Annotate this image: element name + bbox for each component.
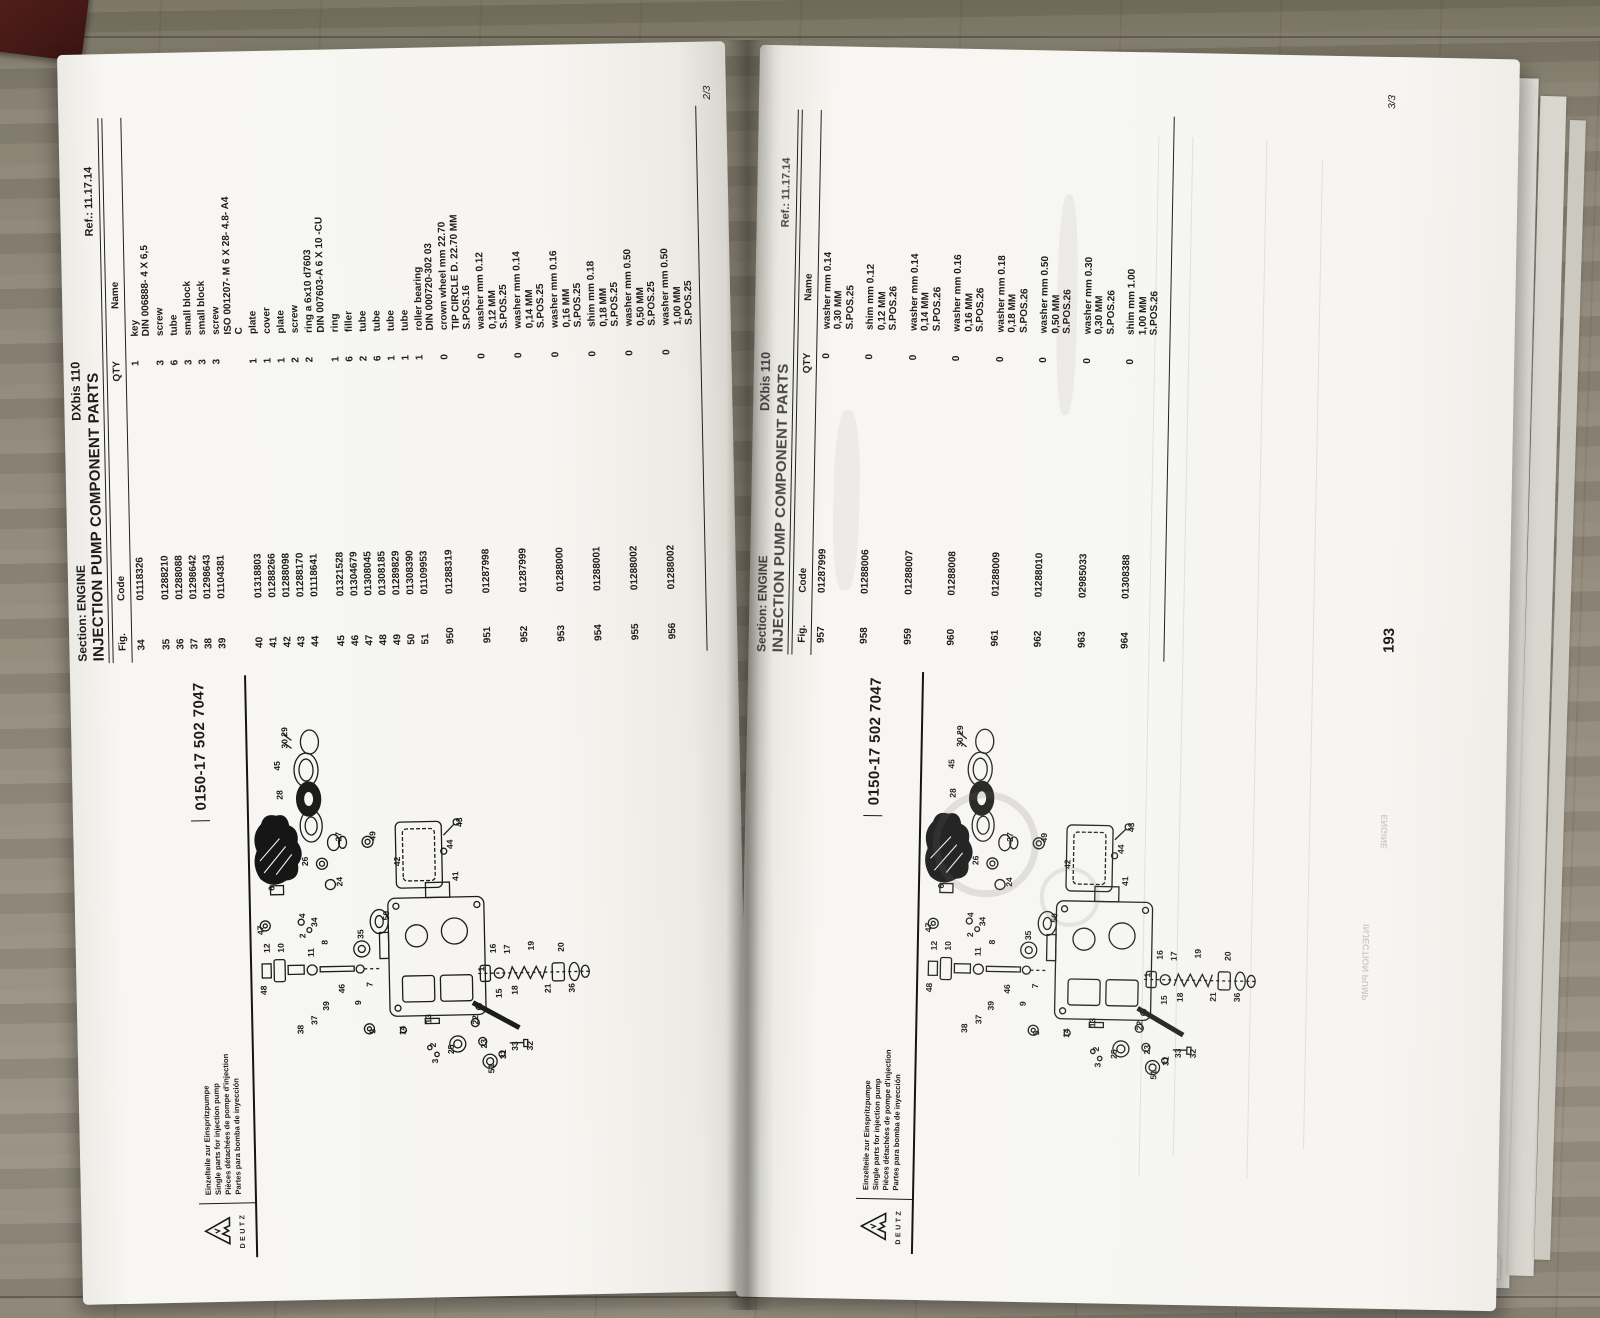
callout-number: 12: [262, 943, 272, 953]
callout-number: 42: [392, 856, 402, 866]
fig-cell: 956: [666, 589, 702, 652]
callout-number: 14: [397, 1025, 407, 1035]
callout-number: 36: [1232, 992, 1242, 1002]
code-cell: 01288000: [553, 483, 590, 592]
callout-number: 7: [364, 982, 374, 987]
qty-cell: 0: [624, 350, 661, 483]
code-cell: 01109953: [417, 486, 442, 594]
deutz-logo-icon: [859, 1209, 890, 1244]
callout-number: 7: [1030, 983, 1040, 988]
code-cell: 01298643: [200, 491, 214, 599]
callout-number: 6: [266, 886, 276, 891]
callout-number: 33: [510, 1041, 520, 1051]
callout-number: 8: [320, 940, 330, 945]
name-cell: shim mm 0.120,12 MMS.POS.26: [865, 264, 901, 331]
col-name: Name: [110, 282, 122, 309]
callout-number: 20: [1223, 951, 1233, 961]
callout-number: 15: [494, 988, 504, 998]
callout-number: 13: [1087, 1018, 1097, 1028]
code-cell: 01308185: [375, 487, 389, 595]
callout-number: 9: [1018, 1001, 1028, 1006]
fig-cell: 953: [555, 591, 591, 654]
qty-cell: 0: [550, 351, 587, 484]
left-page-content: Section: ENGINE DXbis 110 INJECTION PUMP…: [59, 45, 745, 1299]
col-qty: QTY: [111, 361, 125, 493]
fig-cell: 45: [335, 596, 348, 658]
name-cell: washer mm 0.140,30 MMS.POS.25: [821, 252, 857, 330]
fig-cell: 37: [188, 599, 201, 661]
callout-number: 2: [428, 1042, 438, 1047]
fig-cell: 957: [815, 593, 851, 656]
callout-number: 31: [1161, 1056, 1171, 1066]
deutz-brand-text: DEUTZ: [895, 1200, 903, 1254]
qty-cell: 6: [372, 355, 386, 487]
diagram-box: DEUTZ Einzelteile zur Einspritzpumpe Sin…: [188, 667, 678, 1259]
diagram-part-number: 0150-17 502 7047: [188, 676, 210, 822]
qty-cell: 1: [400, 355, 414, 487]
name-cell: washer mm 0.120,12 MMS.POS.25: [474, 251, 510, 329]
fig-cell: 963: [1076, 598, 1112, 661]
fig-cell: 955: [629, 590, 665, 653]
right-page-content: Section: ENGINE DXbis 110 INJECTION PUMP…: [738, 49, 1422, 1301]
exploded-diagram: 4812103837394611897476434230 29452840262…: [246, 669, 673, 1258]
fig-cell: 960: [945, 596, 981, 659]
qty-cell: 0: [949, 356, 986, 489]
model-label: DXbis 110: [68, 362, 83, 421]
fig-cell: 954: [592, 590, 628, 653]
callout-number: 49: [367, 831, 377, 841]
qty-cell: 2: [358, 356, 372, 488]
callout-number: 45: [946, 759, 956, 769]
name-cell: washer mm 0.140,14 MMS.POS.25: [511, 251, 547, 329]
fig-cell: 962: [1032, 597, 1068, 660]
fig-cell: 51: [419, 594, 443, 656]
qty-cell: 3: [155, 360, 169, 492]
fig-cell: 44: [309, 596, 333, 658]
name-cell: washer mm 0.500,50 MMS.POS.25: [622, 248, 658, 326]
fig-cell: 39: [216, 598, 252, 661]
callout-number: 30 29: [279, 727, 289, 749]
name-cell: plate: [247, 311, 259, 335]
callout-number: 22: [470, 1015, 480, 1025]
deutz-logo: DEUTZ: [855, 1198, 912, 1254]
exploded-diagram: 4812103837394611897476434230 29452840262…: [913, 674, 1339, 1262]
callout-number: 44: [1116, 844, 1126, 854]
deutz-logo-icon: [203, 1214, 234, 1249]
deutz-brand-text: DEUTZ: [239, 1203, 247, 1257]
qty-cell: 1: [276, 357, 290, 489]
code-cell: 01288001: [590, 482, 627, 591]
red-book-corner: [0, 0, 90, 62]
code-cell: 01288319: [442, 485, 479, 594]
code-cell: 01288266: [265, 490, 279, 598]
book-photo: Section: ENGINE DXbis 110 INJECTION PUMP…: [0, 0, 1600, 1318]
sheet-indicator: 3/3: [1387, 95, 1398, 109]
callout-number: 35: [1023, 930, 1033, 940]
callout-number: 2: [1091, 1046, 1101, 1051]
callout-number: 9: [353, 1000, 363, 1005]
callout-number: 22: [1134, 1020, 1144, 1030]
callout-number: 2: [965, 932, 975, 937]
fig-cell: 951: [481, 593, 517, 656]
fig-cell: 38: [202, 599, 215, 661]
callout-number: 13: [423, 1014, 433, 1024]
code-cell: 01288002: [664, 481, 701, 590]
code-cell: 01287999: [516, 484, 553, 593]
qty-cell: 6: [344, 356, 358, 488]
ref-label: Ref.: 11.17.14: [780, 158, 793, 228]
code-cell: 01288002: [627, 482, 664, 591]
qty-cell: 0: [476, 353, 513, 486]
callout-number: 34: [309, 917, 319, 927]
table-row: 961012880090washer mm 0.180,18 MMS.POS.2…: [989, 113, 1034, 659]
code-cell: 01308390: [403, 487, 417, 595]
qty-cell: 0: [513, 352, 550, 485]
callout-number: 21: [543, 983, 553, 993]
code-cell: 01288006: [860, 486, 897, 595]
callout-number: 48: [924, 982, 934, 992]
callout-number: 19: [526, 941, 536, 951]
qty-cell: 0: [661, 349, 698, 482]
name-cell: washer mm 0.300,30 MMS.POS.26: [1082, 257, 1118, 335]
diagram-box: DEUTZ Einzelteile zur Einspritzpumpe Sin…: [855, 671, 1344, 1262]
fig-cell: 35: [160, 600, 173, 662]
qty-cell: 1: [248, 358, 262, 490]
col-name: Name: [803, 273, 815, 300]
callout-number: 31: [498, 1049, 508, 1059]
callout-number: 39: [321, 1001, 331, 1011]
name-cell: washer mm 0.140,14 MMS.POS.26: [908, 253, 944, 331]
callout-number: 4: [297, 913, 307, 918]
callout-number: 21: [1208, 992, 1218, 1002]
name-cell: ring a 6x10 d7603DIN 007603-A 6 X 10 -CU: [301, 217, 326, 333]
diagram-languages: Einzelteile zur Einspritzpumpe Single pa…: [856, 942, 906, 1199]
callout-number: 2: [297, 933, 307, 938]
page-number: 193: [1381, 628, 1398, 653]
callout-number: 48: [259, 985, 269, 995]
wood-plank-line: [0, 36, 1600, 38]
qty-cell: 0: [587, 350, 624, 483]
fig-cell: 43: [295, 597, 308, 659]
fig-cell: 34: [135, 600, 159, 662]
code-cell: 01288170: [293, 489, 307, 597]
ref-label: Ref.: 11.17.14: [82, 167, 95, 237]
code-cell: 02985033: [1077, 490, 1114, 599]
callout-number: 38: [295, 1024, 305, 1034]
callout-number: 27: [333, 832, 343, 842]
qty-cell: 1: [262, 358, 276, 490]
callout-number: 14: [1061, 1028, 1071, 1038]
qty-cell: 0: [439, 353, 476, 486]
section-label: Section: ENGINE: [74, 565, 90, 662]
callout-number: 38: [959, 1023, 969, 1033]
fig-cell: 49: [391, 595, 404, 657]
fig-cell: 42: [281, 597, 294, 659]
ghost-text: INJECTION PUMP: [1360, 924, 1371, 1001]
qty-cell: 0: [992, 356, 1029, 489]
callout-number: 25: [1109, 1049, 1119, 1059]
name-cell: tube: [399, 310, 411, 331]
qty-cell: 3: [211, 358, 248, 491]
code-cell: 01304679: [347, 488, 361, 596]
callout-number: 25: [446, 1044, 456, 1054]
name-cell: shim mm 0.180,18 MMS.POS.25: [585, 260, 621, 327]
callout-number: 12: [929, 940, 939, 950]
callout-number: 43: [454, 817, 464, 827]
fig-cell: 50: [405, 595, 418, 657]
col-qty: QTY: [800, 353, 814, 485]
name-cell: screw: [289, 305, 301, 334]
callout-number: 6: [936, 883, 946, 888]
fig-cell: 47: [363, 596, 376, 658]
code-cell: 01288007: [903, 487, 940, 596]
fig-cell: 36: [174, 600, 187, 662]
callout-number: 40: [277, 817, 287, 827]
ghost-text: ENGINE: [1379, 814, 1390, 849]
name-cell: roller bearingDIN 000720-302 03: [412, 243, 437, 331]
callout-number: 16: [488, 943, 498, 953]
qty-cell: 3: [183, 359, 197, 491]
callout-number: 47: [255, 925, 265, 935]
parts-table: Fig. Code QTY Name 34011183261keyDIN 006…: [104, 106, 707, 663]
callout-number: 5: [367, 1029, 377, 1034]
callout-number: 3: [430, 1058, 440, 1063]
callout-number: 46: [1002, 984, 1012, 994]
diagram-part-number: 0150-17 502 7047: [863, 671, 885, 817]
code-cell: 01288088: [172, 492, 186, 600]
name-cell: tube: [168, 315, 180, 336]
callout-number: 1: [476, 966, 486, 971]
qty-cell: 2: [290, 357, 304, 489]
sheet-indicator: 2/3: [702, 85, 713, 99]
table-row: 963029850330washer mm 0.300,30 MMS.POS.2…: [1076, 115, 1121, 661]
col-fig: Fig.: [116, 601, 129, 663]
callout-number: 17: [502, 944, 512, 954]
name-cell: washer mm 0.160,16 MMS.POS.26: [952, 254, 988, 332]
code-cell: 01118326: [133, 492, 158, 600]
code-cell: 01104381: [214, 490, 251, 599]
fig-cell: 41: [267, 598, 280, 660]
callout-number: 10: [943, 941, 953, 951]
callout-number: 8: [987, 939, 997, 944]
fig-cell: 950: [444, 593, 480, 656]
code-cell: 01288098: [279, 489, 293, 597]
fig-cell: 952: [518, 592, 554, 655]
name-cell: tube: [385, 310, 397, 331]
callout-number: 37: [973, 1014, 983, 1024]
callout-number: 50: [381, 911, 391, 921]
callout-number: 26: [300, 856, 310, 866]
fig-cell: 961: [989, 596, 1025, 659]
qty-cell: 1: [130, 360, 156, 492]
callout-number: 3: [1093, 1062, 1103, 1067]
name-cell: washer mm 0.160,16 MMS.POS.25: [548, 250, 584, 328]
callout-number: 15: [1159, 995, 1169, 1005]
qty-cell: 3: [197, 359, 211, 491]
code-cell: 01288008: [947, 488, 984, 597]
col-code: Code: [798, 485, 812, 593]
code-cell: 01321528: [333, 488, 347, 596]
code-cell: 01118641: [307, 489, 332, 597]
fig-cell: 48: [377, 595, 390, 657]
table-bottom-rule: [1163, 117, 1174, 662]
callout-number: 51: [1148, 1070, 1158, 1080]
callout-number: 37: [309, 1015, 319, 1025]
qty-cell: 1: [330, 356, 344, 488]
callout-number: 34: [977, 916, 987, 926]
fig-cell: 46: [349, 596, 362, 658]
callout-number: 47: [923, 922, 933, 932]
col-code: Code: [114, 493, 128, 601]
code-cell: 01288009: [990, 488, 1027, 597]
deutz-logo: DEUTZ: [199, 1202, 256, 1258]
code-cell: 01287998: [479, 485, 516, 594]
callout-number: 16: [1155, 950, 1165, 960]
name-cell: small block: [196, 281, 209, 336]
code-cell: 01318803: [251, 490, 265, 598]
code-cell: 01298642: [186, 491, 200, 599]
name-cell: screwISO 001207- M 6 X 28- 4.8- A4C: [208, 196, 245, 335]
callout-number: 28: [274, 790, 284, 800]
right-page: Section: ENGINE DXbis 110 INJECTION PUMP…: [736, 45, 1520, 1311]
callout-number: 39: [986, 1001, 996, 1011]
name-cell: cover: [261, 307, 273, 334]
callout-number: 32: [1188, 1048, 1198, 1058]
name-cell: keyDIN 006888- 4 X 6,5: [127, 245, 152, 337]
name-cell: ring: [329, 313, 341, 332]
code-cell: 01288210: [158, 492, 172, 600]
callout-number: 4: [965, 912, 975, 917]
diagram-languages: Einzelteile zur Einspritzpumpe Single pa…: [194, 947, 244, 1204]
fig-cell: 959: [902, 595, 938, 658]
name-cell: small block: [182, 281, 195, 336]
callout-number: 35: [355, 929, 365, 939]
callout-number: 24: [334, 877, 344, 887]
name-cell: crown wheel mm 22.70TIP CIRCLE D. 22.70 …: [436, 214, 473, 330]
fig-cell: 958: [858, 594, 894, 657]
name-cell: plate: [275, 310, 287, 334]
callout-number: 41: [1120, 876, 1130, 886]
callout-number: 5: [1031, 1030, 1041, 1035]
callout-number: 36: [567, 983, 577, 993]
name-cell: screw: [154, 308, 166, 337]
book-spine-shadow: [726, 40, 774, 1310]
callout-number: 51: [486, 1063, 496, 1073]
callout-number: 10: [276, 943, 286, 953]
fig-cell: 40: [253, 598, 266, 660]
qty-cell: 0: [862, 354, 899, 487]
qty-cell: 0: [905, 355, 942, 488]
qty-cell: 2: [304, 357, 330, 489]
code-cell: 01289829: [389, 487, 403, 595]
callout-number: 23: [479, 1039, 489, 1049]
name-cell: tube: [371, 310, 383, 331]
callout-number: 20: [556, 942, 566, 952]
name-cell: filler: [343, 311, 355, 332]
left-page: Section: ENGINE DXbis 110 INJECTION PUMP…: [57, 41, 751, 1305]
callout-number: 32: [525, 1041, 535, 1051]
table-row: 959012880070washer mm 0.140,14 MMS.POS.2…: [902, 112, 947, 658]
callout-number: 11: [973, 947, 983, 956]
name-cell: washer mm 0.501,00 MMS.POS.25: [659, 248, 695, 326]
name-cell: tube: [357, 311, 369, 332]
callout-number: 45: [272, 761, 282, 771]
qty-cell: 1: [386, 355, 400, 487]
callout-number: 46: [336, 984, 346, 994]
callout-number: 1: [1142, 972, 1152, 977]
callout-number: 30 29: [955, 725, 965, 747]
table-row: 960012880080washer mm 0.160,16 MMS.POS.2…: [945, 113, 990, 659]
callout-number: 41: [450, 871, 460, 881]
callout-number: 28: [948, 788, 958, 798]
code-cell: 01308045: [361, 488, 375, 596]
callout-number: 19: [1193, 949, 1203, 959]
qty-cell: 0: [1079, 358, 1116, 491]
callout-number: 44: [444, 839, 454, 849]
qty-cell: 6: [169, 360, 183, 492]
callout-number: 11: [306, 948, 316, 957]
callout-number: 18: [510, 985, 520, 995]
qty-cell: 1: [414, 354, 440, 486]
table-row: 958012880060shim mm 0.120,12 MMS.POS.26: [858, 111, 903, 657]
name-cell: washer mm 0.180,18 MMS.POS.26: [995, 255, 1031, 333]
callout-number: 49: [1039, 833, 1049, 843]
callout-number: 23: [1142, 1045, 1152, 1055]
col-fig: Fig.: [796, 593, 809, 655]
callout-number: 43: [1126, 822, 1136, 832]
code-cell: 01288010: [1034, 489, 1071, 598]
